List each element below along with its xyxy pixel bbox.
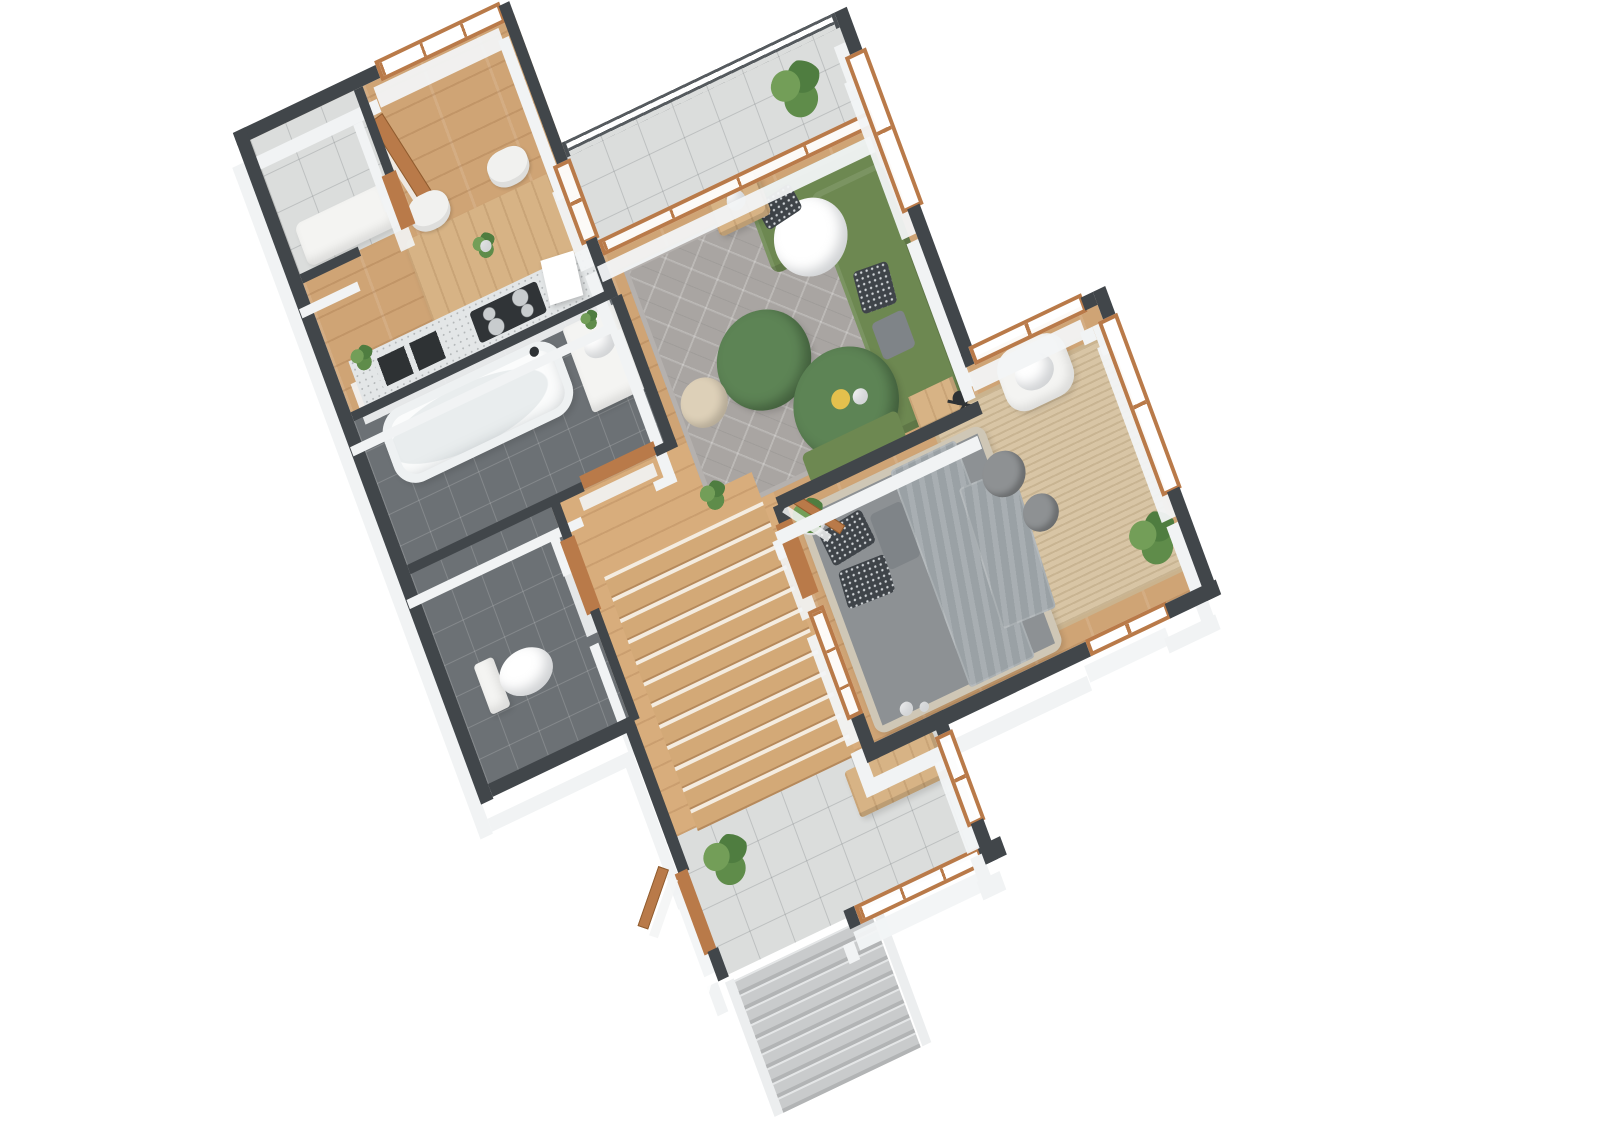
watermark-text: ty — [582, 924, 727, 1099]
floor-plan-render: ty — [0, 0, 1600, 1131]
apartment-3d-plan — [250, 0, 1362, 1131]
entrance-door-leaf — [638, 866, 669, 929]
